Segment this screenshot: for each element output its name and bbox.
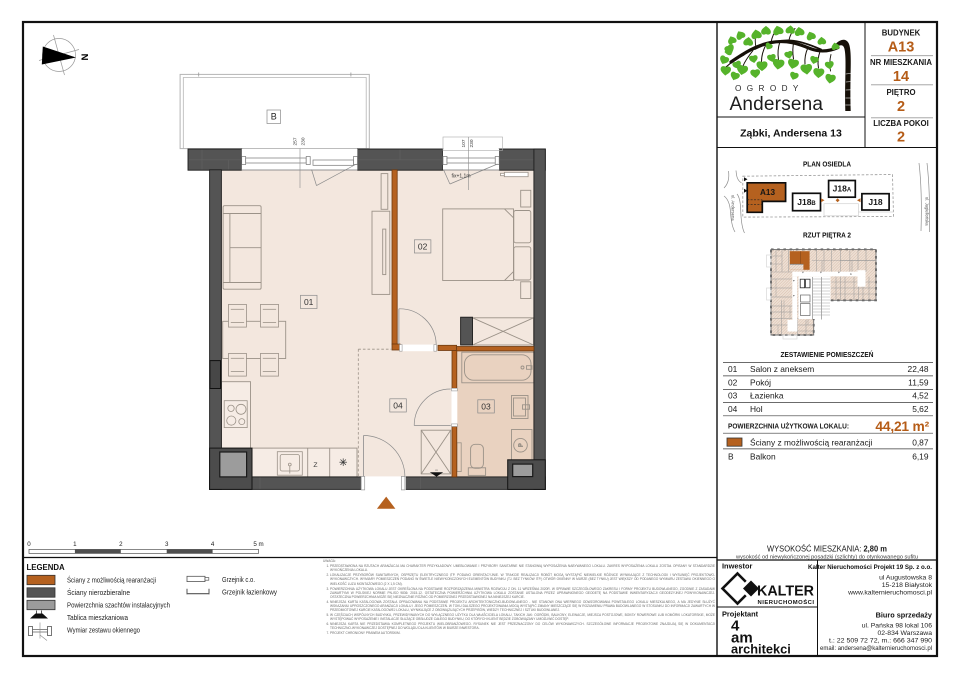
svg-text:Tablica mieszkaniowa: Tablica mieszkaniowa [67, 615, 128, 622]
svg-text:P: P [518, 443, 524, 447]
svg-text:LEGENDA: LEGENDA [27, 563, 65, 572]
svg-text:ul. Jagiellońska: ul. Jagiellońska [925, 197, 930, 226]
svg-text:fix+1,1m: fix+1,1m [451, 174, 470, 180]
svg-text:Wymiar zestawu okiennego: Wymiar zestawu okiennego [67, 628, 140, 635]
svg-text:architekci: architekci [731, 642, 791, 657]
svg-text:Pokój: Pokój [750, 377, 771, 387]
svg-text:Projektant: Projektant [722, 610, 759, 619]
svg-text:Inwestor: Inwestor [722, 562, 753, 571]
svg-text:14: 14 [893, 69, 909, 85]
svg-text:15-218 Białystok: 15-218 Białystok [882, 582, 933, 589]
svg-text:OGRODY: OGRODY [735, 84, 804, 93]
svg-text:ul Augustowska 8: ul Augustowska 8 [879, 575, 932, 582]
svg-text:1: 1 [73, 541, 77, 548]
svg-text:POWIERZCHNIA UŻYTKOWA LOKALU:: POWIERZCHNIA UŻYTKOWA LOKALU: [728, 422, 849, 431]
svg-text:wysokość od niewykończonej pos: wysokość od niewykończonej posadzki (szl… [735, 554, 918, 560]
svg-text:Ściany z możliwością rearanżac: Ściany z możliwością rearanżacji [750, 437, 873, 448]
svg-text:2: 2 [119, 541, 123, 548]
svg-text:Ząbki, Andersena 13: Ząbki, Andersena 13 [740, 128, 842, 140]
svg-text:22,48: 22,48 [908, 364, 929, 374]
svg-text:3: 3 [165, 541, 169, 548]
svg-text:2: 2 [897, 130, 905, 146]
svg-text:02: 02 [728, 377, 738, 387]
svg-text:02: 02 [418, 241, 428, 251]
svg-text:02-834 Warszawa: 02-834 Warszawa [877, 630, 932, 637]
svg-text:ul. Andersena: ul. Andersena [731, 195, 736, 221]
svg-text:04: 04 [728, 404, 738, 414]
svg-text:0,87: 0,87 [912, 438, 929, 448]
svg-text:NIERUCHOMOŚCI: NIERUCHOMOŚCI [758, 599, 815, 606]
svg-text:A13: A13 [760, 188, 775, 197]
svg-text:www.kalternieruchomosci.pl: www.kalternieruchomosci.pl [847, 590, 932, 597]
svg-text:03: 03 [481, 401, 491, 411]
svg-text:PIĘTRO: PIĘTRO [886, 88, 915, 97]
svg-text:230: 230 [301, 137, 307, 145]
svg-text:Ściany nierozbieralne: Ściany nierozbieralne [67, 588, 130, 597]
svg-text:Kalter Nieruchomości Projekt 1: Kalter Nieruchomości Projekt 19 Sp. z o.… [808, 564, 932, 571]
svg-text:Ściany z możliwością rearanżac: Ściany z możliwością rearanżacji [67, 576, 156, 585]
svg-text:Z: Z [313, 462, 317, 469]
svg-text:0: 0 [27, 541, 31, 548]
svg-text:04: 04 [393, 400, 403, 410]
svg-text:Biuro sprzedaży: Biuro sprzedaży [876, 611, 933, 620]
svg-text:257: 257 [293, 137, 299, 145]
svg-text:01: 01 [728, 364, 738, 374]
svg-text:ul. Pańska 98 lokal 106: ul. Pańska 98 lokal 106 [862, 623, 933, 630]
svg-text:Hol: Hol [750, 404, 763, 414]
svg-text:4,52: 4,52 [912, 391, 929, 401]
svg-text:Balkon: Balkon [750, 451, 776, 461]
svg-text:KALTER: KALTER [757, 583, 814, 600]
svg-text:Grzejnik łazienkowy: Grzejnik łazienkowy [222, 590, 277, 597]
svg-text:B: B [728, 451, 734, 461]
svg-text:Grzejnik c.o.: Grzejnik c.o. [222, 577, 255, 584]
svg-text:RZUT PIĘTRA 2: RZUT PIĘTRA 2 [803, 231, 851, 240]
svg-text:Łazienka: Łazienka [750, 391, 784, 401]
svg-text:230: 230 [469, 139, 475, 147]
svg-text:B: B [271, 112, 277, 122]
svg-text:LICZBA POKOI: LICZBA POKOI [873, 119, 929, 128]
svg-text:44,21 m²: 44,21 m² [875, 419, 929, 434]
svg-text:ZESTAWIENIE POMIESZCZEŃ: ZESTAWIENIE POMIESZCZEŃ [781, 350, 874, 359]
svg-text:2: 2 [897, 99, 905, 115]
svg-text:WYSOKOŚĆ MIESZKANIA: 2,80 m: WYSOKOŚĆ MIESZKANIA: 2,80 m [767, 543, 887, 554]
svg-text:t.: 22 509 72 72, m.: 666 347: t.: 22 509 72 72, m.: 666 347 990 [829, 638, 932, 645]
svg-text:Powierzchnia szachtów instalac: Powierzchnia szachtów instalacyjnych [67, 603, 170, 610]
svg-text:Salon z aneksem: Salon z aneksem [750, 364, 814, 374]
svg-text:11,59: 11,59 [908, 377, 929, 387]
svg-text:03: 03 [728, 391, 738, 401]
svg-text:01: 01 [304, 297, 314, 307]
svg-text:N: N [78, 54, 89, 61]
svg-text:email: andersena@kalternieruch: email: andersena@kalternieruchomosci.pl [820, 645, 932, 652]
svg-text:107: 107 [461, 139, 467, 147]
svg-text:PLAN OSIEDLA: PLAN OSIEDLA [803, 160, 852, 169]
svg-text:NR MIESZKANIA: NR MIESZKANIA [870, 58, 932, 67]
svg-text:BUDYNEK: BUDYNEK [882, 29, 921, 38]
svg-text:A13: A13 [888, 40, 915, 56]
svg-text:5 m: 5 m [253, 541, 263, 548]
svg-text:Andersena: Andersena [730, 94, 824, 115]
svg-text:6,19: 6,19 [912, 451, 929, 461]
svg-text:5,62: 5,62 [912, 404, 929, 414]
svg-text:J18: J18 [868, 197, 882, 207]
svg-text:4: 4 [211, 541, 215, 548]
